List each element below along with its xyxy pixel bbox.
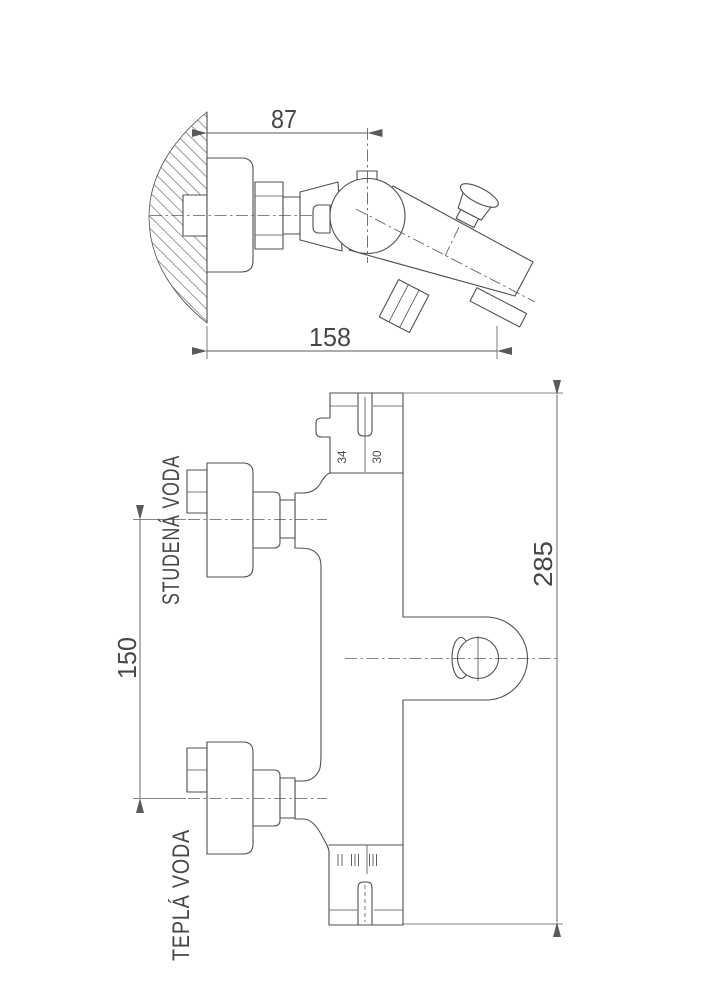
faucet-drawing-svg: 87 158 34 30 [0, 0, 707, 1000]
escutcheon-side [207, 158, 253, 272]
cold-cone-nut [253, 492, 280, 548]
hot-water-label: TEPLÁ VODA [168, 829, 195, 961]
dim-285-value: 285 [528, 541, 558, 587]
dim-34-value: 34 [335, 450, 349, 463]
side-view: 87 158 [149, 104, 535, 359]
hot-nipple [280, 778, 295, 818]
shower-outlet-coupling [379, 280, 429, 333]
dimension-87: 87 [207, 104, 368, 134]
cold-nipple [280, 500, 295, 538]
hot-escutcheon [207, 742, 253, 854]
cold-wall-nut [187, 470, 207, 513]
valve-boss [313, 205, 330, 233]
dim-158-value: 158 [309, 322, 351, 352]
technical-drawing: 87 158 34 30 [0, 0, 707, 1000]
hot-cone-nut [253, 770, 280, 826]
dim-150-value: 150 [112, 637, 142, 679]
cold-water-label: STUDENÁ VODA [158, 455, 185, 605]
dim-30-value: 30 [370, 450, 384, 463]
dim-87-value: 87 [271, 104, 297, 134]
front-view: 34 30 [112, 393, 563, 961]
cold-escutcheon [207, 463, 253, 577]
dimension-158: 158 [207, 322, 497, 359]
